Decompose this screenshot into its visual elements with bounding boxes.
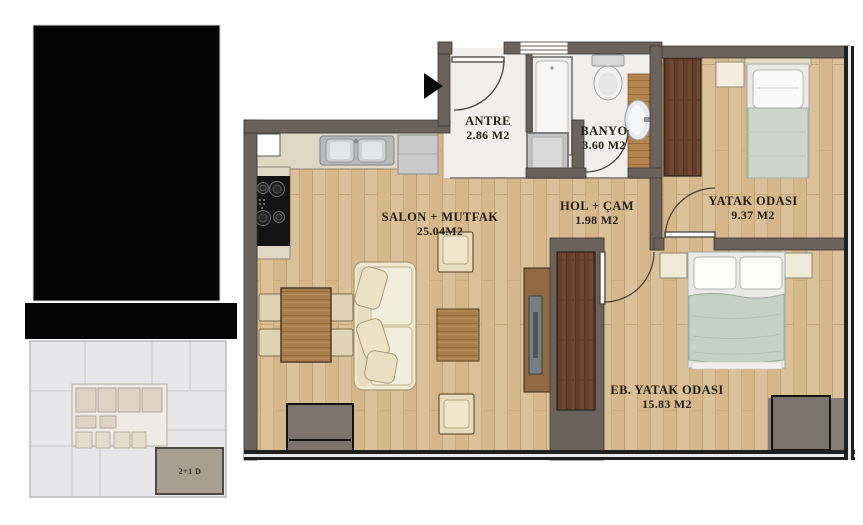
nightstand <box>660 253 687 278</box>
vanity-sink <box>625 74 653 172</box>
single-bed <box>745 56 811 178</box>
coffee-table <box>437 309 479 361</box>
wall-salon-top <box>244 120 450 133</box>
room-area-eb-yatak: 15.83 M2 <box>642 397 692 411</box>
redacted-bar <box>25 303 237 339</box>
wall-banyo-bottom-left <box>526 168 586 178</box>
cooktop <box>256 176 291 246</box>
room-label-yatak: YATAK ODASI <box>708 194 797 208</box>
room-label-antre: ANTRE <box>465 114 511 128</box>
kitchen-corner-window <box>256 134 280 156</box>
fridge <box>398 135 438 174</box>
tv-unit <box>524 268 551 392</box>
room-label-eb-yatak: EB. YATAK ODASI <box>610 383 723 397</box>
room-area-yatak: 9.37 M2 <box>731 208 774 222</box>
room-label-banyo: BANYO <box>580 124 627 138</box>
wall-left <box>244 120 257 460</box>
redacted-block <box>33 25 220 301</box>
wall-bedroom1-top <box>650 46 850 58</box>
wardrobe-divider <box>557 252 595 410</box>
sofa <box>353 262 416 390</box>
nightstand <box>785 253 812 278</box>
wardrobe <box>664 58 701 176</box>
banyo-window <box>520 42 568 54</box>
wall-banyo-bedroom <box>650 46 662 250</box>
washing-machine <box>527 133 568 173</box>
wall-banyo-bottom-right <box>628 168 662 178</box>
key-plan: 2+1 D <box>30 341 226 497</box>
room-area-antre: 2.86 M2 <box>466 128 509 142</box>
column-shaft <box>768 396 844 452</box>
double-bed <box>688 252 785 369</box>
kitchen-sink <box>320 136 394 165</box>
dining-table <box>281 288 331 362</box>
wall-antre-banyo <box>526 54 532 132</box>
floor-plan-drawing: 2+1 D <box>0 0 863 525</box>
room-area-hol: 1.98 M2 <box>575 213 618 227</box>
nightstand <box>716 62 744 87</box>
toilet <box>592 55 624 100</box>
room-area-banyo: 3.60 M2 <box>582 138 625 152</box>
wall-bedrooms-divider <box>714 238 850 250</box>
room-area-salon: 25.04M2 <box>417 224 463 238</box>
floor-plan-page: 2+1 D <box>0 0 863 525</box>
key-plan-core <box>72 384 167 448</box>
room-label-salon: SALON + MUTFAK <box>382 210 499 224</box>
room-label-hol: HOL + ÇAM <box>560 199 634 213</box>
fireplace-unit <box>287 404 353 452</box>
key-plan-unit-label: 2+1 D <box>179 467 202 476</box>
